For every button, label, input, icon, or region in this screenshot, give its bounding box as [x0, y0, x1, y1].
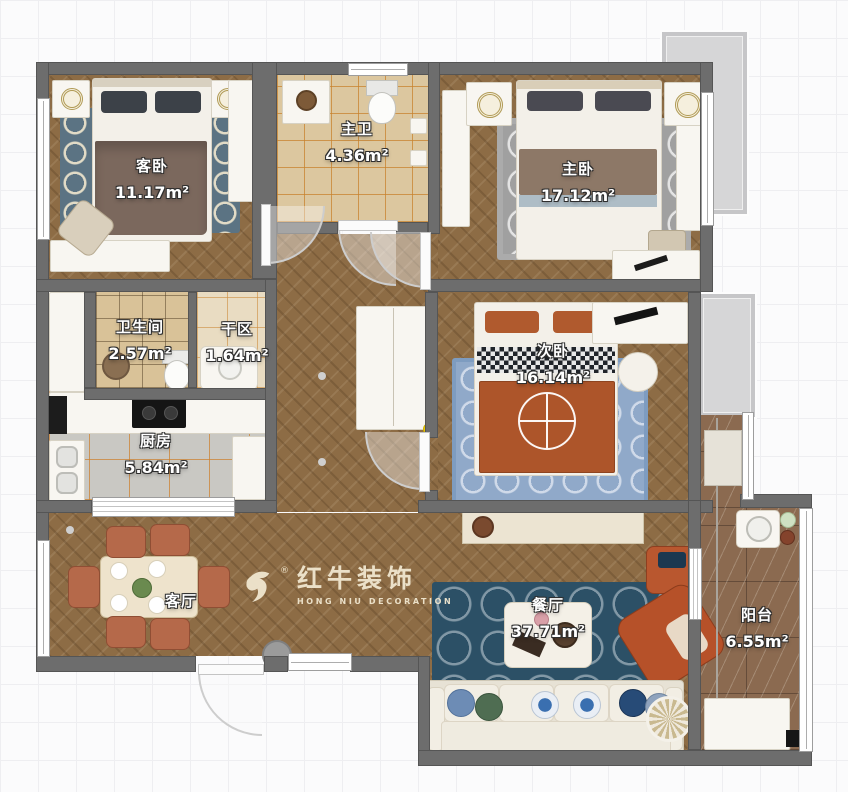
balcony-window — [799, 508, 813, 752]
armchair-pillow-icon — [658, 552, 686, 568]
living-left-window — [37, 540, 50, 657]
room-name: 主卧 — [541, 158, 615, 179]
sofa-pillow-navy — [619, 689, 647, 717]
kitchen-sink-basin-2-icon — [56, 472, 78, 494]
wall-tv — [418, 500, 713, 513]
entry-door-leaf — [198, 664, 264, 675]
kitchen-burner-1-icon — [142, 406, 156, 420]
room-label-dining-room: 餐厅 37.71m² — [511, 594, 585, 641]
dining-downlight-icon — [66, 526, 74, 534]
room-area: 4.36m² — [325, 146, 388, 165]
dining-plate-2-icon — [148, 560, 166, 578]
brand-name-en: HONG NIU DECORATION — [297, 597, 453, 606]
room-area: 6.55m² — [725, 632, 788, 651]
balcony-doormat — [704, 430, 742, 486]
room-area: 1.64m² — [205, 346, 268, 365]
kitchen-tall-cabinet[interactable] — [49, 292, 85, 392]
wall-living-balcony — [688, 500, 701, 750]
room-area: 17.12m² — [541, 186, 615, 205]
brand-name-cn: 红牛装饰 — [297, 566, 453, 591]
master-bath-shower-fitting-bottom — [410, 150, 427, 166]
dining-plate-4-icon — [148, 596, 166, 614]
hallway-downlight-1-icon — [318, 372, 326, 380]
dining-centerpiece-plant-icon — [132, 578, 152, 598]
wall-dining-bottom-2 — [264, 656, 288, 672]
brand-text: 红牛装饰 HONG NIU DECORATION — [297, 566, 453, 606]
master-bath-basin-icon — [296, 90, 317, 111]
wall-kitchen-bottom-left — [36, 500, 92, 513]
balcony-plate-green-icon — [780, 512, 796, 528]
guest-bed-pillow-left — [101, 91, 147, 113]
room-label-second-bedroom: 次卧 16.14m² — [516, 340, 590, 387]
guest-bed-pillow-right — [155, 91, 201, 113]
room-area: 2.57m² — [108, 344, 171, 363]
sofa-pillow-blue-1 — [447, 689, 475, 717]
balcony-plate-brown-icon — [780, 530, 795, 545]
room-name: 干区 — [205, 318, 268, 339]
wall-master-bottom — [428, 279, 713, 292]
wall-bath-left — [84, 292, 96, 388]
master-lamp-left-icon — [477, 92, 503, 118]
room-label-living-room: 客厅 — [165, 590, 197, 611]
side-fan-table-icon — [646, 696, 692, 742]
master-bed-headboard — [517, 81, 661, 89]
master-bath-window — [348, 63, 408, 76]
room-label-bathroom: 卫生间 2.57m² — [108, 316, 171, 363]
second-desk[interactable] — [592, 302, 688, 344]
room-name: 客卧 — [115, 155, 189, 176]
balcony-washing-machine[interactable] — [704, 698, 790, 750]
equipment-platform-right — [697, 292, 757, 419]
dining-chair-bottom-2[interactable] — [150, 618, 190, 650]
dining-chair-top-1[interactable] — [106, 526, 146, 558]
tv-console-speaker-icon — [472, 516, 494, 538]
master-bath-door-leaf — [338, 220, 398, 231]
guest-closet[interactable] — [228, 80, 254, 202]
room-name: 阳台 — [725, 604, 788, 625]
dining-chair-top-2[interactable] — [150, 524, 190, 556]
sofa-pillow-pattern-2 — [573, 691, 601, 719]
room-name: 次卧 — [516, 340, 590, 361]
hongniu-bull-logo-icon — [244, 566, 284, 606]
balcony-sink-basin-icon — [746, 516, 772, 542]
dining-plate-1-icon — [110, 562, 128, 580]
wall-sofa-left — [418, 656, 430, 762]
room-label-balcony: 阳台 6.55m² — [725, 604, 788, 651]
guest-bed-headboard — [93, 79, 211, 87]
dining-plate-3-icon — [110, 594, 128, 612]
room-name: 主卫 — [325, 118, 388, 139]
guest-bedroom-door-leaf — [261, 204, 271, 266]
wall-second-left-upper — [425, 292, 438, 438]
guest-lamp-left-icon — [61, 88, 83, 110]
second-desk-chair[interactable] — [618, 352, 658, 392]
wall-masterbath-right — [428, 62, 440, 234]
wall-kitchen-bottom-right — [233, 500, 277, 513]
room-area: 16.14m² — [516, 368, 590, 387]
master-bed-pillow-right — [595, 91, 651, 111]
kitchen-side-cabinet[interactable] — [232, 436, 266, 500]
room-label-guest-bedroom: 客卧 11.17m² — [115, 155, 189, 202]
room-name: 餐厅 — [511, 594, 585, 615]
hallway-wardrobe-divider — [393, 308, 394, 426]
master-bedroom-door-leaf — [420, 232, 431, 290]
room-area: 11.17m² — [115, 183, 189, 202]
second-bedroom-ceiling-light-icon — [518, 392, 576, 450]
room-label-master-bedroom: 主卧 17.12m² — [541, 158, 615, 205]
sofa-pillow-green — [475, 693, 503, 721]
kitchen-burner-2-icon — [164, 406, 178, 420]
dining-window — [288, 653, 352, 671]
balcony-sliding-door[interactable] — [689, 548, 702, 620]
guest-dresser[interactable] — [50, 240, 170, 272]
guest-window — [37, 98, 50, 240]
hallway-downlight-2-icon — [318, 458, 326, 466]
kitchen-fridge[interactable] — [49, 396, 67, 434]
second-bed-pillow-left — [485, 311, 539, 333]
room-label-kitchen: 厨房 5.84m² — [124, 430, 187, 477]
room-area: 5.84m² — [124, 458, 187, 477]
wall-guest-bottom — [36, 279, 277, 292]
room-name: 客厅 — [165, 590, 197, 611]
master-window — [701, 92, 714, 226]
wall-bath-bottom — [84, 388, 266, 400]
wall-bottom — [418, 750, 812, 766]
wall-bath-divider — [188, 292, 197, 388]
room-name: 厨房 — [124, 430, 187, 451]
second-bedroom-door-leaf — [419, 432, 430, 492]
room-name: 卫生间 — [108, 316, 171, 337]
bathroom-toilet-bowl — [164, 360, 190, 390]
master-lamp-right-icon — [675, 92, 701, 118]
dining-chair-left[interactable] — [68, 566, 100, 608]
brand-watermark: ® 红牛装饰 HONG NIU DECORATION — [244, 566, 453, 606]
registered-mark: ® — [280, 566, 289, 576]
floor-plan-canvas: 客卧 11.17m² 主卫 4.36m² 主卧 17.12m² 卫生间 2.57… — [0, 0, 848, 792]
kitchen-sliding-door[interactable] — [92, 497, 235, 517]
wall-second-right — [688, 292, 701, 513]
balcony-strip-window — [742, 412, 754, 500]
wall-corridor-left — [265, 279, 277, 512]
room-label-dry-area: 干区 1.64m² — [205, 318, 268, 365]
entry-door[interactable] — [198, 672, 262, 736]
wall-dining-bottom-1 — [36, 656, 196, 672]
master-bath-shower-fitting-top — [410, 118, 427, 134]
master-bed-pillow-left — [527, 91, 583, 111]
dining-chair-right[interactable] — [198, 566, 230, 608]
kitchen-sink-basin-1-icon — [56, 446, 78, 468]
room-label-master-bath: 主卫 4.36m² — [325, 118, 388, 165]
hallway-wardrobe[interactable] — [356, 306, 434, 430]
sofa-pillow-pattern-1 — [531, 691, 559, 719]
dining-chair-bottom-1[interactable] — [106, 616, 146, 648]
room-area: 37.71m² — [511, 622, 585, 641]
